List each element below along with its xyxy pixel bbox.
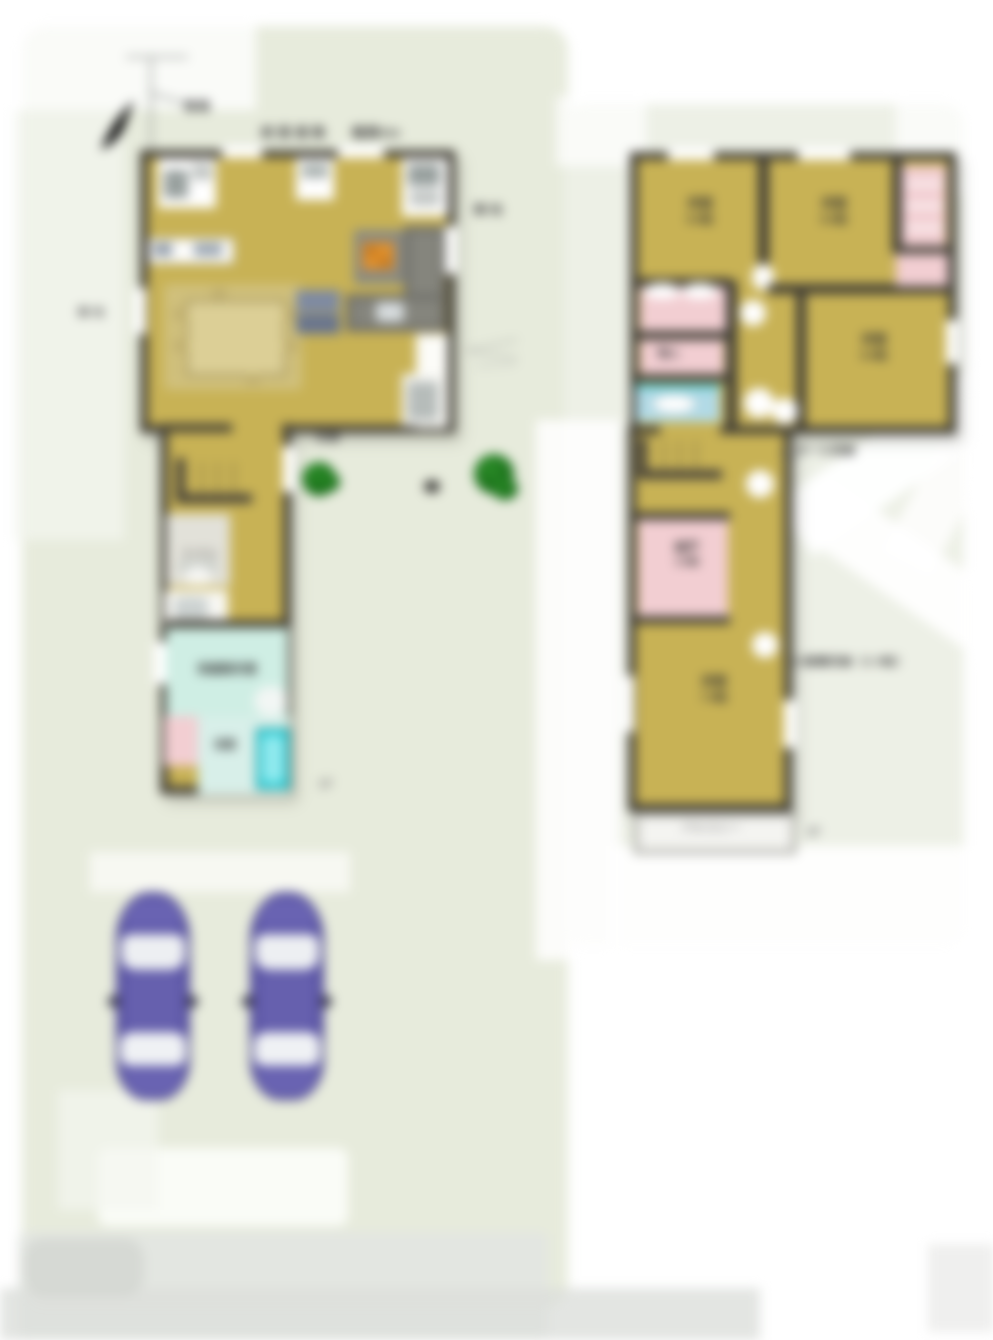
window (622, 676, 634, 732)
car-roof (259, 974, 315, 1028)
north-arrow-icon (96, 92, 142, 158)
laundry-corner (164, 716, 200, 766)
ground-white-patch (90, 852, 350, 892)
neighbor-left-label: 隣地 (78, 306, 108, 320)
cabinet (164, 170, 188, 198)
wall (758, 160, 769, 264)
vanity-sink-icon (174, 597, 208, 619)
car-hood (124, 898, 182, 928)
toilet-label: トイレ (183, 548, 219, 561)
storage-item (408, 382, 438, 420)
door-gap (740, 300, 766, 326)
balcony-label: バルコニー (682, 822, 742, 835)
window (338, 146, 384, 158)
stair-tread (232, 462, 235, 494)
stairs-rail (176, 494, 252, 503)
car-icon (110, 890, 196, 1104)
tree-icon (318, 472, 340, 492)
garden-stone (424, 480, 440, 493)
chair-icon (174, 340, 188, 352)
room-size: 3.0帖 (662, 556, 712, 569)
closet-label: 物入 (658, 347, 680, 361)
door-gap (746, 470, 774, 498)
washbasin-edge (636, 384, 720, 389)
closet-shelf-line (906, 182, 942, 186)
wall (726, 280, 737, 426)
door-gap (772, 398, 798, 424)
stair-tread (694, 440, 697, 470)
light-burst (610, 846, 990, 950)
road-width-label: 幅員6m (352, 125, 401, 142)
tree-icon (492, 478, 518, 500)
room-name: 洋室 (846, 332, 902, 349)
bedroom3-label: 洋室 6.0帖 (846, 332, 902, 363)
wall-opening (232, 418, 282, 438)
desk (296, 314, 340, 334)
car-rear-window (254, 1032, 320, 1066)
car-trunk (257, 1070, 317, 1096)
closet-shelf-line (906, 204, 942, 208)
car-windshield (121, 934, 185, 970)
washbasin-sink-icon (652, 394, 696, 414)
door-gap (744, 388, 774, 418)
dining-table-icon (186, 300, 286, 376)
room-size: 6.0帖 (806, 213, 862, 227)
floor2-label: 2F (806, 824, 821, 841)
stair-tread (678, 440, 681, 470)
car-windshield (255, 934, 319, 970)
closet-arc (644, 283, 680, 299)
room-name: 納戸 (662, 540, 712, 556)
ground-gray-blob (928, 1244, 993, 1332)
ground-white-patch (14, 110, 124, 540)
road-label: 道路 (184, 99, 212, 115)
chair-icon (212, 288, 226, 299)
bath-label: 浴室 (214, 738, 236, 752)
sideboard-item (194, 243, 222, 256)
toilet-icon (184, 566, 212, 586)
wall (166, 620, 288, 628)
ground-gray-blob (24, 1238, 144, 1296)
bedroom2-label: 洋室 6.0帖 (806, 196, 862, 227)
desk (296, 290, 340, 312)
car-roof (125, 974, 181, 1028)
ground-white-patch (58, 1090, 158, 1210)
closet (896, 254, 948, 286)
car-trunk (123, 1070, 183, 1096)
sink-icon (376, 302, 404, 322)
window (445, 226, 457, 274)
window (946, 320, 958, 364)
storage-label: 納戸 3.0帖 (662, 540, 712, 569)
window (222, 146, 262, 158)
floor1-label: 1F (318, 776, 333, 793)
wall (892, 158, 902, 250)
floor-plan-screenshot: 道路 前面道路 幅員6m 隣地 隣地 トイレ (0, 0, 993, 1340)
hall-note-label: ホール収納 (796, 444, 856, 458)
wall (638, 374, 730, 382)
closet-shelf-line (906, 226, 942, 230)
cabinet (192, 164, 212, 180)
wall (892, 246, 954, 254)
stair-tread (200, 462, 203, 494)
window (154, 642, 166, 684)
bathtub-inner (262, 736, 284, 782)
stair-tread (216, 462, 219, 494)
bedroom1-label: 洋室 6.0帖 (672, 196, 728, 227)
front-road-label: 前面道路 (261, 125, 329, 142)
washroom-label: 洗面脱衣室 (197, 662, 257, 678)
attic-note-label: 小屋裏収納（2.5帖） (793, 655, 907, 669)
entrance-door (283, 446, 295, 492)
burner (380, 258, 390, 267)
stairs-rail (638, 470, 722, 479)
ground-white-patch (536, 420, 620, 960)
room-name: 洋室 (672, 196, 728, 213)
window (668, 148, 714, 160)
wall (636, 512, 730, 520)
car-mirror (320, 996, 332, 1007)
closet-arc (682, 283, 718, 299)
car-rear-window (120, 1032, 186, 1066)
room-size: 7.5帖 (686, 691, 742, 705)
wall (638, 331, 730, 340)
window (134, 288, 146, 334)
chair-icon (174, 308, 188, 320)
room-name: 洋室 (806, 196, 862, 213)
window (798, 148, 850, 160)
dimension-line-top (126, 56, 188, 58)
cabinet (410, 190, 440, 206)
closet (640, 340, 724, 374)
wall (636, 616, 730, 624)
car-mirror (108, 996, 120, 1007)
room-size: 6.0帖 (846, 349, 902, 363)
entrance-label: 玄関 (316, 431, 340, 445)
wall-opening (660, 420, 720, 438)
stair-tread (662, 440, 665, 470)
door-gap (752, 632, 778, 658)
sideboard-item (154, 243, 172, 256)
car-hood (258, 898, 316, 928)
room-size: 6.0帖 (672, 213, 728, 227)
car-mirror (186, 996, 198, 1007)
chair-icon (246, 374, 260, 385)
room-name: 洋室 (686, 674, 742, 691)
cabinet (302, 164, 328, 178)
burner (366, 246, 376, 255)
bedroom4-label: 洋室 7.5帖 (686, 674, 742, 705)
neighbor-right-label: 隣地 (474, 203, 506, 219)
dimension-line-vertical (150, 56, 152, 152)
cabinet (408, 164, 440, 186)
car-icon (244, 890, 330, 1104)
washing-machine-icon (254, 686, 288, 716)
car-mirror (242, 996, 254, 1007)
window (784, 700, 796, 748)
chair-icon (284, 340, 298, 352)
blurred-scene: 道路 前面道路 幅員6m 隣地 隣地 トイレ (0, 0, 993, 1340)
